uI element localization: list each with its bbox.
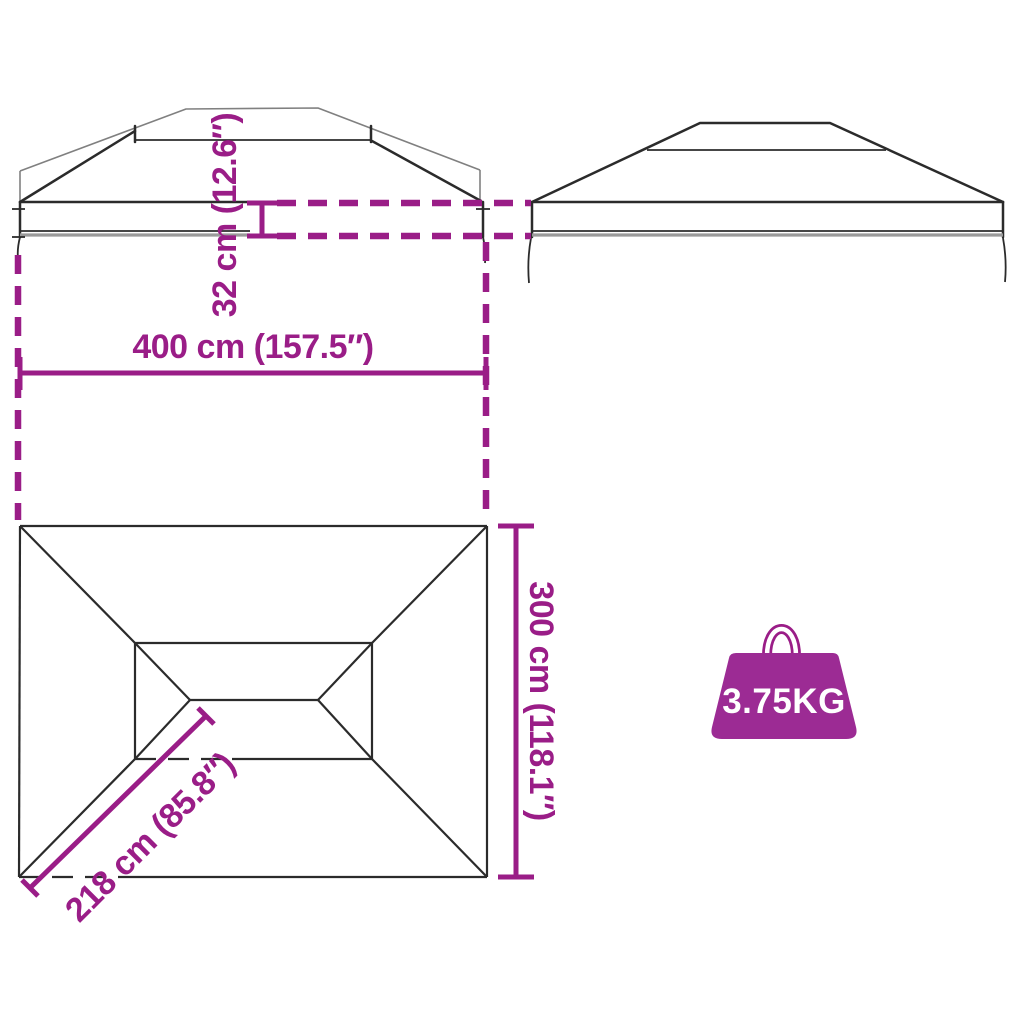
canopy-left-strap-l — [18, 237, 20, 258]
height-dimension-label: 32 cm (12.6″) — [206, 113, 244, 317]
canopy-top-view — [19, 526, 487, 877]
top-view-edge-left — [19, 526, 20, 877]
roof-height-dimension: 32 cm (12.6″) — [206, 113, 277, 317]
top-view-diagonal-tl — [20, 526, 135, 643]
weight-badge: 3.75KG — [711, 629, 856, 739]
top-view-diagonal-br — [372, 759, 487, 877]
gazebo-dimension-diagram: 32 cm (12.6″) 400 cm (157.5″) 300 — [0, 0, 1024, 1024]
canopy-right-strap-l — [528, 238, 531, 283]
top-view-diagonal-tr — [372, 526, 487, 643]
weight-label: 3.75KG — [722, 682, 846, 721]
depth-dimension-label: 300 cm (118.1″) — [522, 581, 560, 820]
canopy-right-roof-outline — [532, 123, 1003, 202]
canopy-side-view-left — [12, 108, 490, 263]
canopy-left-roof-slope-l — [20, 131, 135, 202]
width-dimension: 400 cm (157.5″) — [20, 328, 486, 390]
top-view-vent-diagonal-bl — [135, 700, 190, 759]
top-view-vent-diagonal-br — [318, 700, 372, 759]
canopy-side-view-right — [528, 123, 1005, 283]
corner-dimension: 218 cm (85.8″) — [22, 708, 242, 929]
width-dimension-label: 400 cm (157.5″) — [132, 328, 373, 366]
depth-dimension: 300 cm (118.1″) — [498, 526, 560, 877]
top-view-vent-diagonal-tr — [318, 643, 372, 700]
top-view-vent-diagonal-tl — [135, 643, 190, 700]
canopy-right-strap-r — [1003, 238, 1006, 282]
